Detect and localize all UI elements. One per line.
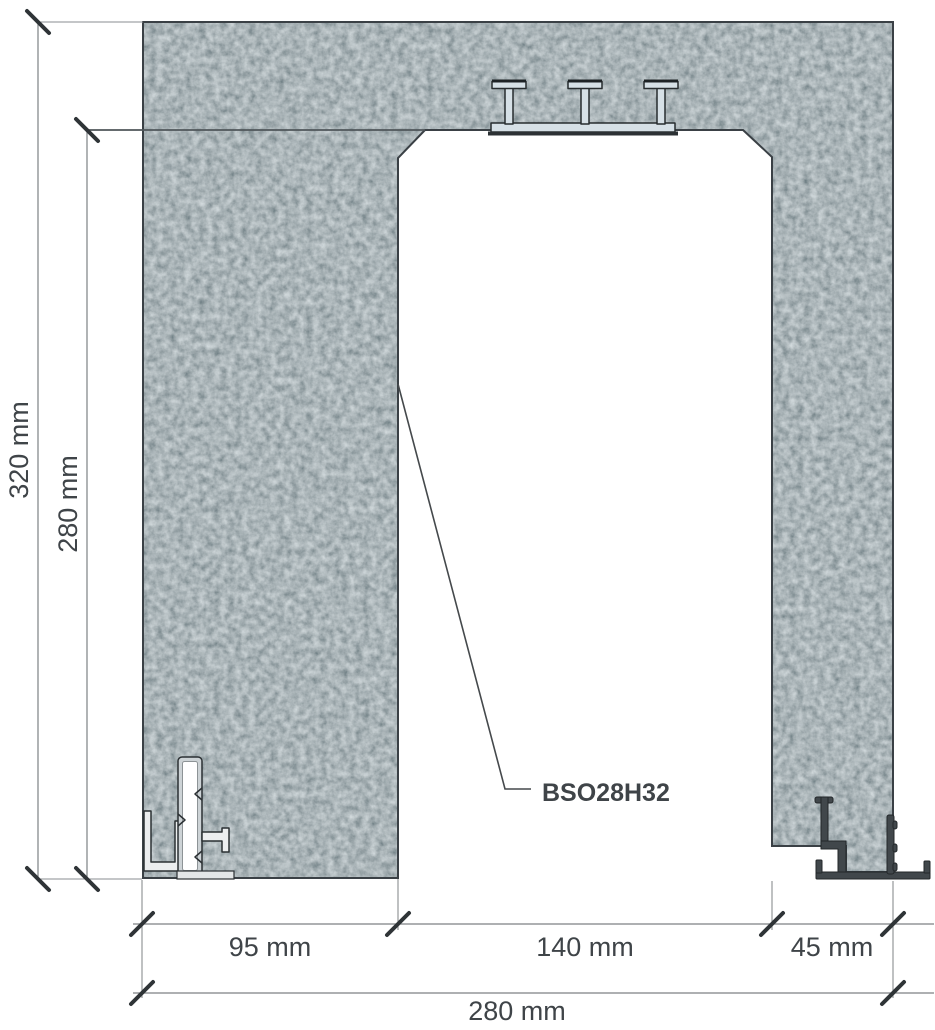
dim-left-jamb-text: 95 mm [229,932,312,962]
section-drawing: 320 mm 280 mm 95 mm 140 mm 45 mm 280 mm … [0,0,935,1030]
base-plate [816,872,930,879]
anchor-plate-shadow [488,132,678,136]
edge-bar-bump [893,844,897,852]
concrete-texture [143,22,893,878]
dimension-opening-height: 280 mm [53,119,98,890]
dim-opening-width-text: 140 mm [536,932,634,962]
sill-strip [177,871,234,879]
base-plate-left-lip [816,860,822,873]
dim-right-jamb-text: 45 mm [791,932,874,962]
concrete-wall-section [143,22,893,878]
step-profile [821,841,846,873]
frame-tube-inner [183,762,198,871]
leader-line [398,384,531,789]
dimension-total-width: 280 mm [131,982,934,1026]
profile-callout: BSO28H32 [398,384,670,807]
base-plate-right-lip [924,861,930,873]
dim-total-width-text: 280 mm [468,996,566,1026]
dimension-bottom-row: 95 mm 140 mm 45 mm [131,879,934,998]
anchor-bar [821,797,828,846]
profile-label: BSO28H32 [542,779,670,807]
edge-bar-bump [893,863,897,871]
edge-bar-bump [893,821,897,829]
dim-total-height-text: 320 mm [4,401,34,499]
dimension-total-height: 320 mm [4,11,143,890]
dim-opening-height-text: 280 mm [53,455,83,553]
